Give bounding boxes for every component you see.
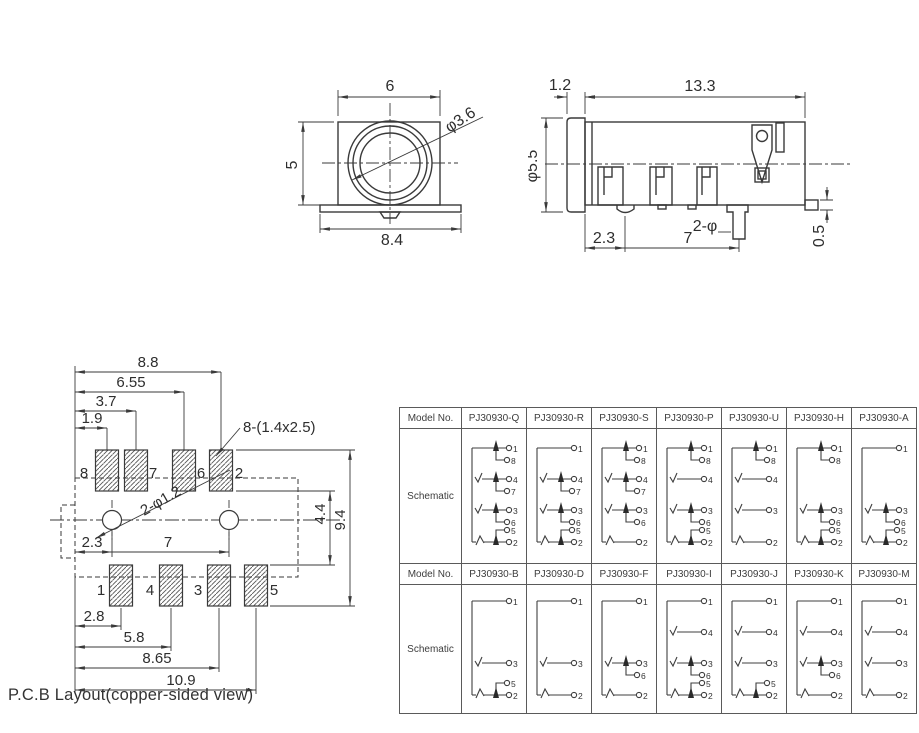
svg-text:3: 3 bbox=[578, 659, 583, 669]
model-name-PJ30930-F: PJ30930-F bbox=[592, 564, 657, 585]
pad-7 bbox=[125, 450, 148, 491]
dim-side-post-note: 2-φ bbox=[693, 218, 718, 235]
pad-label-7: 7 bbox=[149, 465, 157, 482]
svg-text:4: 4 bbox=[513, 475, 518, 485]
dim-6-55: 6.55 bbox=[116, 374, 145, 391]
schematic-cell-PJ30930-S: 1847362 bbox=[592, 429, 657, 564]
model-name-PJ30930-J: PJ30930-J bbox=[722, 564, 787, 585]
model-no-label: Model No. bbox=[400, 408, 462, 429]
dim-side-length: 13.3 bbox=[684, 78, 715, 95]
svg-text:8: 8 bbox=[641, 456, 646, 466]
dim-1-9: 1.9 bbox=[82, 410, 103, 427]
side-view-dim-labels: 1.2 13.3 φ5.5 2.3 7 2-φ 0.5 bbox=[528, 77, 828, 247]
pcb-dimensions bbox=[75, 366, 355, 694]
svg-text:3: 3 bbox=[578, 506, 583, 516]
dim-9-4: 9.4 bbox=[332, 510, 349, 531]
model-no-label: Model No. bbox=[400, 564, 462, 585]
svg-text:2: 2 bbox=[773, 538, 778, 548]
svg-text:1: 1 bbox=[643, 597, 648, 607]
pad-label-1: 1 bbox=[97, 582, 105, 599]
svg-text:3: 3 bbox=[838, 659, 843, 669]
model-name-PJ30930-R: PJ30930-R bbox=[527, 408, 592, 429]
schematic-PJ30930-P: 1843625 bbox=[658, 434, 720, 556]
svg-text:5: 5 bbox=[706, 526, 711, 536]
svg-text:4: 4 bbox=[838, 628, 843, 638]
schematic-PJ30930-I: 143625 bbox=[658, 587, 720, 709]
svg-text:5: 5 bbox=[836, 526, 841, 536]
svg-text:4: 4 bbox=[773, 475, 778, 485]
dim-side-post-pitch: 7 bbox=[684, 230, 693, 247]
schematic-cell-PJ30930-Q: 18473625 bbox=[462, 429, 527, 564]
pad-note: 8-(1.4x2.5) bbox=[243, 419, 316, 436]
schematic-cell-PJ30930-H: 183625 bbox=[787, 429, 852, 564]
dim-8-8: 8.8 bbox=[138, 354, 159, 371]
dim-front-flange: 8.4 bbox=[381, 232, 403, 249]
svg-text:3: 3 bbox=[708, 506, 713, 516]
dim-front-height: 5 bbox=[284, 160, 301, 169]
schematic-PJ30930-B: 1325 bbox=[463, 587, 525, 709]
pad-label-8: 8 bbox=[80, 465, 88, 482]
svg-text:1: 1 bbox=[903, 597, 908, 607]
svg-text:3: 3 bbox=[903, 506, 908, 516]
dim-8-65: 8.65 bbox=[142, 650, 171, 667]
svg-text:6: 6 bbox=[641, 518, 646, 528]
pad-label-2: 2 bbox=[235, 465, 243, 482]
svg-text:4: 4 bbox=[708, 475, 713, 485]
dim-side-flange: 1.2 bbox=[549, 77, 571, 94]
svg-text:5: 5 bbox=[511, 526, 516, 536]
front-view-centerlines bbox=[322, 103, 458, 224]
model-name-PJ30930-I: PJ30930-I bbox=[657, 564, 722, 585]
svg-text:7: 7 bbox=[511, 487, 516, 497]
pad-1 bbox=[110, 565, 133, 606]
svg-text:4: 4 bbox=[708, 628, 713, 638]
model-name-PJ30930-H: PJ30930-H bbox=[787, 408, 852, 429]
pad-4 bbox=[160, 565, 183, 606]
schematic-cell-PJ30930-R: 1473625 bbox=[527, 429, 592, 564]
schematic-PJ30930-Q: 18473625 bbox=[463, 434, 525, 556]
schematic-cell-PJ30930-D: 132 bbox=[527, 585, 592, 714]
svg-text:3: 3 bbox=[708, 659, 713, 669]
pad-label-4: 4 bbox=[146, 582, 154, 599]
pcb-layout-drawing: 8 7 6 2 1 4 3 5 bbox=[0, 345, 395, 697]
svg-text:2: 2 bbox=[578, 691, 583, 701]
pad-label-3: 3 bbox=[194, 582, 202, 599]
schematic-label: Schematic bbox=[400, 585, 462, 714]
svg-text:1: 1 bbox=[838, 597, 843, 607]
svg-text:2: 2 bbox=[643, 538, 648, 548]
svg-text:7: 7 bbox=[641, 487, 646, 497]
svg-text:1: 1 bbox=[773, 444, 778, 454]
pad-8 bbox=[96, 450, 119, 491]
dim-front-width: 6 bbox=[386, 78, 395, 95]
svg-text:2: 2 bbox=[513, 538, 518, 548]
svg-text:4: 4 bbox=[903, 628, 908, 638]
pad-3 bbox=[208, 565, 231, 606]
svg-text:2: 2 bbox=[643, 691, 648, 701]
svg-text:2: 2 bbox=[903, 691, 908, 701]
svg-text:3: 3 bbox=[773, 659, 778, 669]
model-name-PJ30930-S: PJ30930-S bbox=[592, 408, 657, 429]
svg-text:1: 1 bbox=[708, 444, 713, 454]
schematic-cell-PJ30930-B: 1325 bbox=[462, 585, 527, 714]
svg-text:2: 2 bbox=[578, 538, 583, 548]
schematic-PJ30930-S: 1847362 bbox=[593, 434, 655, 556]
pcb-layout-caption: P.C.B Layout(copper-sided view) bbox=[8, 686, 253, 705]
svg-text:8: 8 bbox=[836, 456, 841, 466]
svg-text:3: 3 bbox=[773, 506, 778, 516]
svg-text:1: 1 bbox=[513, 444, 518, 454]
svg-text:5: 5 bbox=[901, 526, 906, 536]
schematic-cell-PJ30930-P: 1843625 bbox=[657, 429, 722, 564]
schematic-cell-PJ30930-K: 14362 bbox=[787, 585, 852, 714]
schematic-PJ30930-U: 18432 bbox=[723, 434, 785, 556]
svg-text:3: 3 bbox=[643, 659, 648, 669]
svg-text:2: 2 bbox=[708, 538, 713, 548]
svg-text:1: 1 bbox=[578, 444, 583, 454]
svg-text:4: 4 bbox=[773, 628, 778, 638]
schematic-PJ30930-R: 1473625 bbox=[528, 434, 590, 556]
dim-2-8: 2.8 bbox=[84, 608, 105, 625]
dim-3-7: 3.7 bbox=[96, 393, 117, 410]
schematic-cell-PJ30930-M: 1432 bbox=[852, 585, 917, 714]
svg-text:6: 6 bbox=[836, 671, 841, 681]
front-view-drawing: 6 5 8.4 φ3.6 bbox=[278, 58, 518, 256]
dim-5-8: 5.8 bbox=[124, 629, 145, 646]
models-table: Model No.PJ30930-QPJ30930-RPJ30930-SPJ30… bbox=[399, 407, 917, 714]
front-view-dim-labels: 6 5 8.4 φ3.6 bbox=[284, 78, 479, 249]
svg-text:1: 1 bbox=[643, 444, 648, 454]
schematic-cell-PJ30930-J: 14325 bbox=[722, 585, 787, 714]
svg-text:5: 5 bbox=[706, 679, 711, 689]
dim-4-4: 4.4 bbox=[312, 504, 329, 525]
svg-text:3: 3 bbox=[838, 506, 843, 516]
pad-label-5: 5 bbox=[270, 582, 278, 599]
model-name-PJ30930-U: PJ30930-U bbox=[722, 408, 787, 429]
schematic-PJ30930-F: 1362 bbox=[593, 587, 655, 709]
svg-text:3: 3 bbox=[903, 659, 908, 669]
schematic-cell-PJ30930-A: 13625 bbox=[852, 429, 917, 564]
svg-text:3: 3 bbox=[643, 506, 648, 516]
svg-text:4: 4 bbox=[643, 475, 648, 485]
schematic-cell-PJ30930-U: 18432 bbox=[722, 429, 787, 564]
pad-5 bbox=[245, 565, 268, 606]
front-view-body bbox=[320, 121, 461, 218]
model-name-PJ30930-P: PJ30930-P bbox=[657, 408, 722, 429]
svg-text:7: 7 bbox=[576, 487, 581, 497]
pad-label-6: 6 bbox=[197, 465, 205, 482]
side-view-drawing: 1.2 13.3 φ5.5 2.3 7 2-φ 0.5 bbox=[528, 58, 863, 263]
svg-text:1: 1 bbox=[838, 444, 843, 454]
svg-text:6: 6 bbox=[641, 671, 646, 681]
svg-text:1: 1 bbox=[578, 597, 583, 607]
hole-right bbox=[220, 511, 239, 530]
dim-side-foot-offset: 2.3 bbox=[593, 230, 615, 247]
svg-text:1: 1 bbox=[708, 597, 713, 607]
svg-text:2: 2 bbox=[903, 538, 908, 548]
svg-text:8: 8 bbox=[511, 456, 516, 466]
model-name-PJ30930-B: PJ30930-B bbox=[462, 564, 527, 585]
model-name-PJ30930-M: PJ30930-M bbox=[852, 564, 917, 585]
svg-text:2: 2 bbox=[838, 538, 843, 548]
model-name-PJ30930-Q: PJ30930-Q bbox=[462, 408, 527, 429]
svg-text:8: 8 bbox=[706, 456, 711, 466]
svg-text:8: 8 bbox=[771, 456, 776, 466]
svg-text:2: 2 bbox=[708, 691, 713, 701]
svg-text:3: 3 bbox=[513, 506, 518, 516]
dim-7: 7 bbox=[164, 534, 172, 551]
dim-front-jack-dia: φ3.6 bbox=[442, 104, 479, 136]
schematic-cell-PJ30930-I: 143625 bbox=[657, 585, 722, 714]
svg-text:2: 2 bbox=[838, 691, 843, 701]
svg-text:5: 5 bbox=[771, 679, 776, 689]
svg-text:5: 5 bbox=[576, 526, 581, 536]
model-name-PJ30930-A: PJ30930-A bbox=[852, 408, 917, 429]
model-name-PJ30930-K: PJ30930-K bbox=[787, 564, 852, 585]
schematic-PJ30930-K: 14362 bbox=[788, 587, 850, 709]
svg-text:4: 4 bbox=[578, 475, 583, 485]
schematic-PJ30930-D: 132 bbox=[528, 587, 590, 709]
schematic-label: Schematic bbox=[400, 429, 462, 564]
svg-text:3: 3 bbox=[513, 659, 518, 669]
model-name-PJ30930-D: PJ30930-D bbox=[527, 564, 592, 585]
dim-side-barrel: φ5.5 bbox=[528, 150, 541, 183]
drawing-canvas: { "drawing": { "caption": "P.C.B Layout(… bbox=[0, 0, 919, 733]
svg-text:2: 2 bbox=[513, 691, 518, 701]
schematic-cell-PJ30930-F: 1362 bbox=[592, 585, 657, 714]
svg-text:5: 5 bbox=[511, 679, 516, 689]
svg-text:1: 1 bbox=[773, 597, 778, 607]
schematic-PJ30930-H: 183625 bbox=[788, 434, 850, 556]
schematic-PJ30930-A: 13625 bbox=[853, 434, 915, 556]
schematic-PJ30930-M: 1432 bbox=[853, 587, 915, 709]
svg-text:1: 1 bbox=[513, 597, 518, 607]
schematic-PJ30930-J: 14325 bbox=[723, 587, 785, 709]
dim-side-ledge: 0.5 bbox=[811, 225, 828, 247]
dim-2-3: 2.3 bbox=[82, 534, 103, 551]
svg-text:1: 1 bbox=[903, 444, 908, 454]
models-table-body: Model No.PJ30930-QPJ30930-RPJ30930-SPJ30… bbox=[400, 408, 917, 714]
svg-text:2: 2 bbox=[773, 691, 778, 701]
